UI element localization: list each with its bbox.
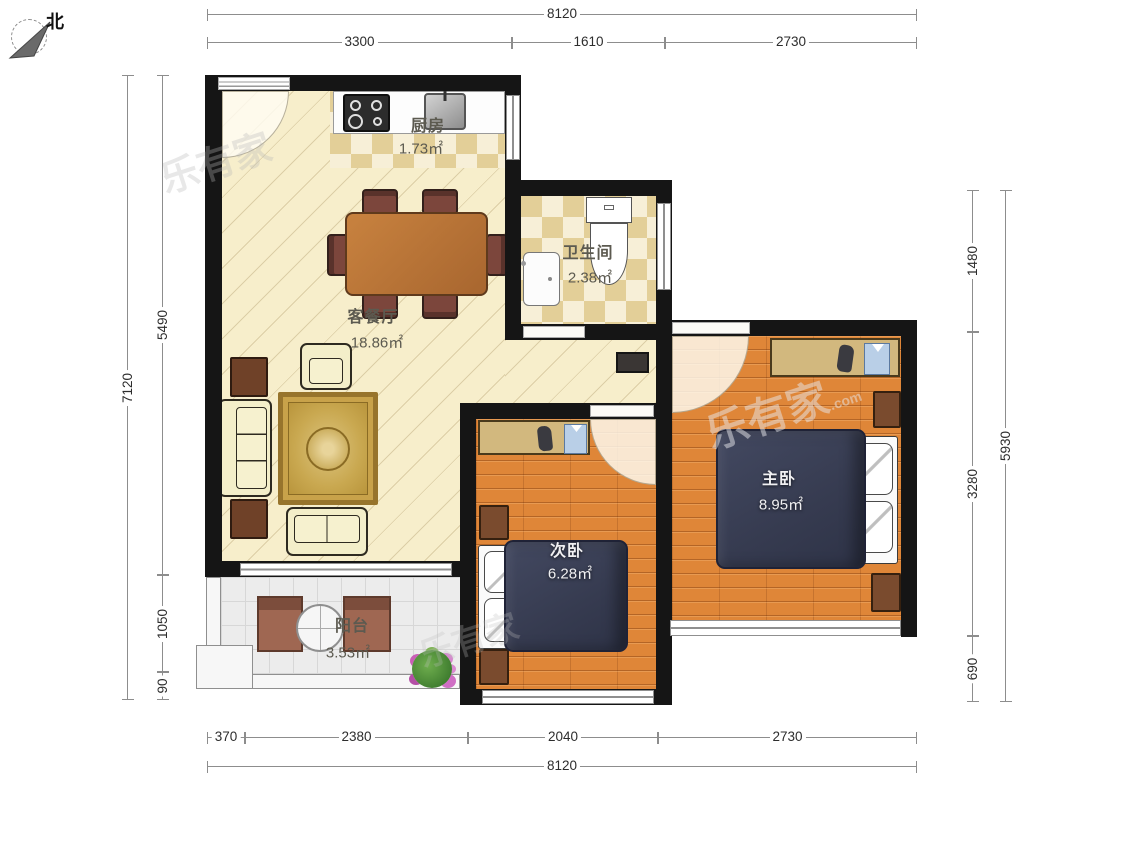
master-area: 8.95㎡ (759, 494, 803, 515)
master-label: 主卧 (762, 465, 796, 489)
dim-top-seg2: 1610 (512, 42, 665, 43)
balcony-parapet-left (206, 577, 221, 647)
bathroom-label: 卫生间 (562, 239, 613, 263)
kitchen-window (506, 95, 520, 160)
living-area: 18.86㎡ (351, 332, 404, 353)
master-window (670, 620, 901, 636)
dim-top-seg1: 3300 (207, 42, 512, 43)
living-balcony-window (240, 563, 452, 576)
second-window (482, 690, 654, 704)
bathroom-door-panel (523, 252, 560, 306)
second-label: 次卧 (550, 537, 584, 561)
bathroom-window (657, 203, 671, 290)
floor-plan: 北 (0, 0, 1125, 844)
second-desk (478, 420, 590, 455)
second-area: 6.28㎡ (548, 563, 592, 584)
shirt-icon (864, 343, 890, 375)
dim-right-seg1: 1480 (972, 190, 973, 332)
balcony-parapet-step (196, 645, 253, 689)
dining-chair (422, 293, 458, 319)
second-door-opening (590, 405, 654, 417)
dining-table (345, 212, 488, 296)
balcony-area: 3.53㎡ (326, 642, 370, 663)
kitchen-label: 厨房 (411, 112, 445, 136)
north-label: 北 (46, 8, 64, 34)
side-table (230, 357, 268, 397)
armchair (300, 343, 352, 390)
side-table (230, 499, 268, 539)
wall-bathroom-top (505, 180, 672, 196)
rug-medallion (306, 427, 350, 471)
bathroom-door-opening (523, 326, 585, 338)
jacket-icon (537, 425, 554, 451)
wall-master-right (901, 320, 917, 637)
master-door-opening (672, 322, 750, 334)
hallway-cabinet (616, 352, 649, 373)
shirt-icon (564, 424, 587, 454)
dim-bottom-seg4: 2730 (658, 737, 917, 738)
dim-bottom-seg1: 370 (207, 737, 245, 738)
two-seat-sofa (286, 507, 368, 556)
dim-bottom-seg2: 2380 (245, 737, 468, 738)
stove-icon (343, 94, 390, 132)
kitchen-area: 1.73㎡ (399, 138, 443, 159)
wall-bathroom-left (505, 197, 521, 340)
entry-door-leaf (218, 77, 290, 90)
dim-top-total: 8120 (207, 14, 917, 15)
dim-right-seg2: 3280 (972, 332, 973, 636)
area-rug (278, 392, 378, 505)
dim-right-total: 5930 (1005, 190, 1006, 702)
bathroom-area: 2.38㎡ (568, 267, 612, 288)
dim-bottom-total: 8120 (207, 766, 917, 767)
dim-bottom-seg3: 2040 (468, 737, 658, 738)
dim-left-total: 7120 (127, 75, 128, 700)
three-seat-sofa (218, 399, 272, 497)
balcony-label: 阳台 (335, 612, 369, 636)
dim-top-seg3: 2730 (665, 42, 917, 43)
dim-left-seg1: 5490 (162, 75, 163, 575)
toilet-tank-icon (586, 197, 632, 223)
living-label: 客餐厅 (347, 303, 398, 327)
master-nightstand (871, 573, 901, 612)
dim-right-seg3: 690 (972, 636, 973, 702)
wall-mid-vertical (656, 322, 672, 705)
master-nightstand (873, 391, 901, 428)
dim-left-seg2: 1050 (162, 575, 163, 672)
dim-left-seg3: 90 (162, 672, 163, 700)
second-nightstand (479, 505, 509, 540)
